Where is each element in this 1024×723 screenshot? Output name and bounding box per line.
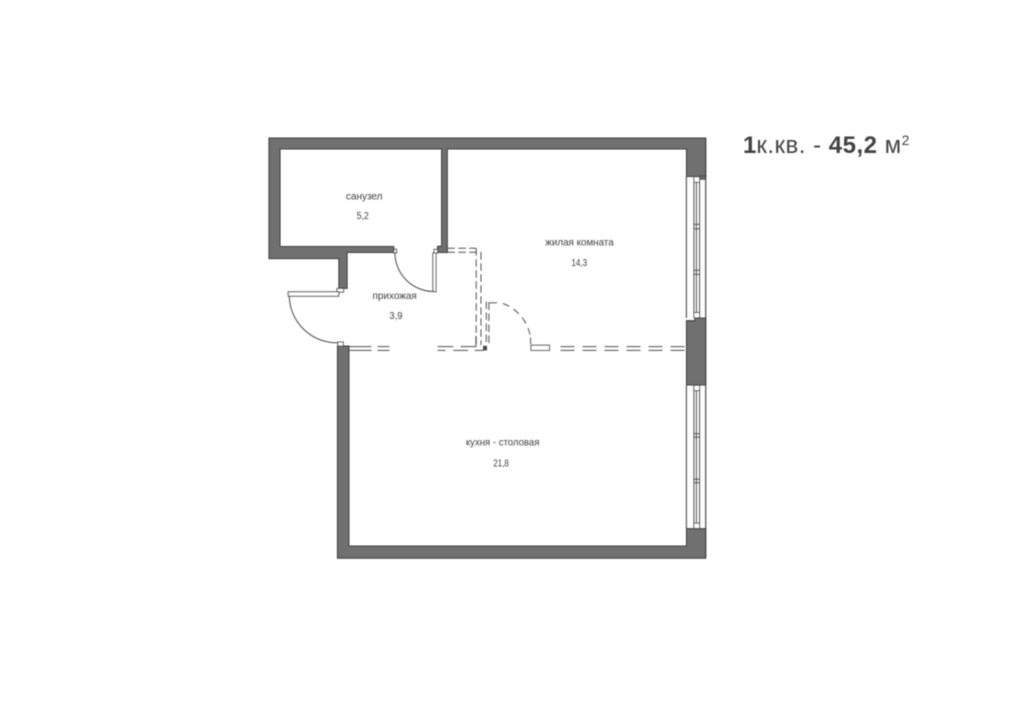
svg-text:кухня - столовая: кухня - столовая bbox=[466, 437, 540, 448]
svg-text:санузел: санузел bbox=[346, 191, 383, 202]
svg-text:14,3: 14,3 bbox=[571, 258, 587, 269]
svg-text:5,2: 5,2 bbox=[357, 211, 370, 222]
svg-text:жилая комната: жилая комната bbox=[545, 238, 614, 249]
svg-text:прихожая: прихожая bbox=[373, 291, 417, 302]
svg-text:3,9: 3,9 bbox=[389, 311, 402, 322]
svg-text:21,8: 21,8 bbox=[493, 458, 509, 469]
svg-text:1к.кв. - 45,2 м2: 1к.кв. - 45,2 м2 bbox=[743, 132, 910, 159]
